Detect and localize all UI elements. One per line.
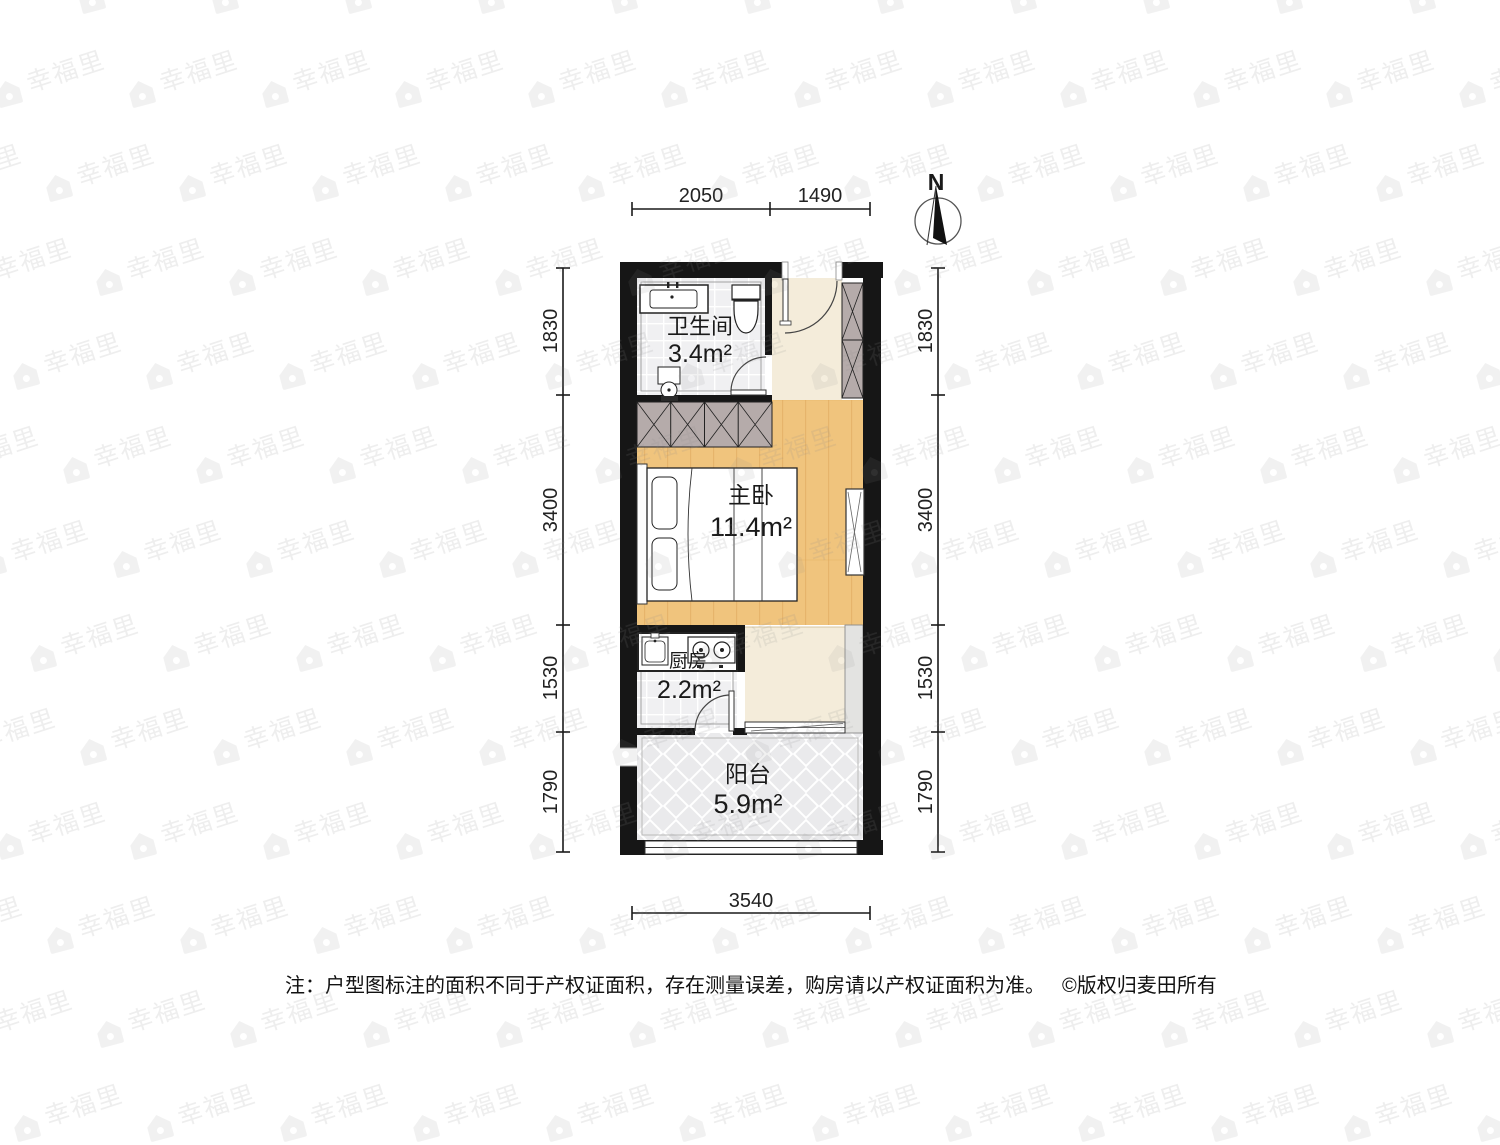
dim-left-3: 1790 xyxy=(540,770,562,815)
wall-left-upper xyxy=(620,262,637,748)
bathroom-name: 卫生间 xyxy=(667,314,733,339)
dim-top-0: 2050 xyxy=(679,185,724,207)
bathroom-area: 3.4m² xyxy=(668,340,732,368)
bedroom-floor-right xyxy=(772,400,863,447)
dim-left-0: 1830 xyxy=(540,309,562,354)
balcony-window xyxy=(645,841,857,854)
floor-plan-canvas: 卫生间 3.4m² 主卧 11.4m² 厨房 2.2m² 阳台 5.9m² 20… xyxy=(0,0,1500,1125)
wardrobe-strip xyxy=(637,402,772,447)
pillow xyxy=(652,477,677,529)
dim-right-1: 3400 xyxy=(915,488,937,533)
wall-kitchen-top xyxy=(620,625,745,633)
kitchen-sink xyxy=(642,633,668,665)
dim-right-3: 1790 xyxy=(915,770,937,815)
kitchen-name: 厨房 xyxy=(669,650,707,672)
footnote: 注：户型图标注的面积不同于产权证面积，存在测量误差，购房请以产权证面积为准。 ©… xyxy=(285,974,1217,997)
bedroom-area: 11.4m² xyxy=(710,512,792,542)
dim-bottom: 3540 xyxy=(632,890,870,920)
note-text: 注：户型图标注的面积不同于产权证面积，存在测量误差，购房请以产权证面积为准。 xyxy=(285,974,1045,997)
dim-left-2: 1530 xyxy=(540,656,562,701)
hall-side-panel xyxy=(845,625,863,733)
bedroom-name: 主卧 xyxy=(728,482,774,508)
bedroom-window xyxy=(846,489,864,575)
balcony-name: 阳台 xyxy=(725,761,771,787)
dim-bottom-0: 3540 xyxy=(729,890,774,912)
wall-kitchen-right xyxy=(737,633,745,672)
door-frame-right xyxy=(836,262,842,280)
dim-top: 2050 1490 xyxy=(632,185,870,216)
wall-kitchen-bottom-left xyxy=(637,728,695,735)
wall-right xyxy=(863,262,881,855)
dim-left: 1830 3400 1530 1790 xyxy=(540,268,570,852)
kitchen-area: 2.2m² xyxy=(657,676,721,704)
dim-right-2: 1530 xyxy=(915,656,937,701)
hall-balcony-window xyxy=(745,722,845,733)
dim-right: 1830 3400 1530 1790 xyxy=(915,268,945,852)
balcony-area: 5.9m² xyxy=(713,789,782,819)
dim-right-0: 1830 xyxy=(915,309,937,354)
balcony-side-opening xyxy=(620,748,637,766)
wall-bathroom-bottom xyxy=(637,395,772,402)
north-indicator: N xyxy=(915,169,961,245)
wall-bathroom-right xyxy=(765,278,772,355)
pillow xyxy=(652,538,677,590)
lower-hall-floor xyxy=(745,627,845,722)
door-frame-left xyxy=(782,262,788,280)
bathtub xyxy=(640,282,708,313)
floorplan-page: 卫生间 3.4m² 主卧 11.4m² 厨房 2.2m² 阳台 5.9m² 20… xyxy=(0,0,1500,1125)
dim-top-1: 1490 xyxy=(798,185,843,207)
wall-top-left xyxy=(620,262,784,278)
copyright-text: ©版权归麦田所有 xyxy=(1062,974,1217,997)
wardrobe-tall xyxy=(842,283,863,398)
dim-left-1: 3400 xyxy=(540,488,562,533)
